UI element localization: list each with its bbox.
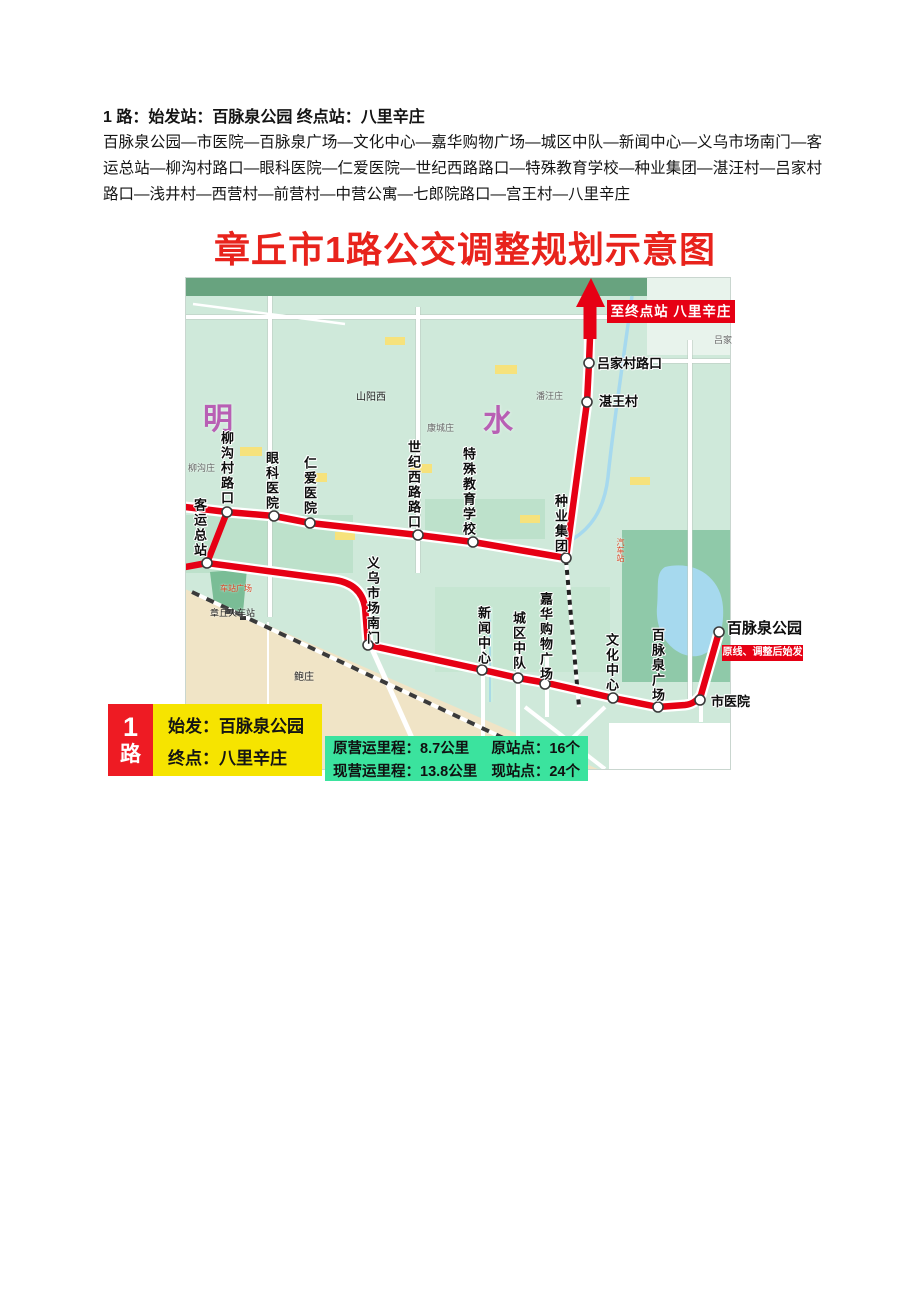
- station-marker: [222, 507, 232, 517]
- station-label-yiwu-market: 义乌市场南门: [365, 556, 379, 646]
- station-marker: [608, 693, 618, 703]
- legend-route-word: 路: [120, 742, 141, 768]
- station-marker: [695, 695, 705, 705]
- map-title: 章丘市1路公交调整规划示意图: [165, 221, 765, 273]
- legend-stats: 原营运里程：8.7公里 原站点：16个 现营运里程：13.8公里 现站点：24个: [325, 736, 588, 781]
- place-lyujia: 吕家: [714, 333, 732, 346]
- legend-start: 始发：百脉泉公园: [168, 712, 322, 737]
- station-marker: [305, 518, 315, 528]
- station-label-baimaiquan-square: 百脉泉广场: [650, 628, 664, 703]
- station-marker: [653, 702, 663, 712]
- scan-white-corner: [609, 723, 731, 770]
- station-label-zhanwangcun: 湛王村: [599, 395, 638, 409]
- station-label-culture-center: 文化中心: [604, 633, 618, 693]
- origin-banner: 原线、调整后始发: [722, 645, 803, 661]
- place-kangchengzhuang: 康城庄: [427, 421, 454, 434]
- station-marker: [513, 673, 523, 683]
- terminal-banner: 至终点站 八里辛庄: [607, 300, 735, 323]
- station-label-lyujiacun: 吕家村路口: [597, 357, 662, 371]
- station-marker: [582, 397, 592, 407]
- map-top-band: [185, 277, 647, 296]
- station-marker: [477, 665, 487, 675]
- station-label-jiahua-mall: 嘉华购物广场: [538, 592, 552, 682]
- legend-end: 终点：八里辛庄: [168, 744, 322, 769]
- area-label-shui: 水: [483, 396, 513, 440]
- legend-new-stops: 现站点：24个: [491, 760, 580, 781]
- station-label-chengqu-unit: 城区中队: [511, 611, 525, 671]
- station-marker: [561, 553, 571, 563]
- legend-new-row: 现营运里程：13.8公里 现站点：24个: [333, 760, 580, 781]
- legend-route-badge: 1 路: [108, 704, 153, 776]
- place-station-square: 车站广场: [220, 583, 252, 594]
- station-label-liugoucun: 柳沟村路口: [219, 431, 233, 506]
- station-label-city-hospital: 市医院: [711, 695, 750, 709]
- station-marker: [202, 558, 212, 568]
- place-shanyangxi: 山阳西: [356, 388, 386, 403]
- place-railway-station: 章丘火车站: [210, 606, 255, 619]
- route-heading: 1 路：始发站：百脉泉公园 终点站：八里辛庄: [103, 103, 843, 127]
- station-marker: [269, 511, 279, 521]
- station-marker: [584, 358, 594, 368]
- place-baozhuang: 鲍庄: [294, 668, 314, 683]
- station-label-bus-terminal: 客运总站: [192, 498, 206, 558]
- station-label-shijixilu: 世纪西路路口: [406, 440, 420, 530]
- station-marker: [468, 537, 478, 547]
- station-marker: [413, 530, 423, 540]
- station-label-baimaiquan-park: 百脉泉公园: [727, 621, 802, 637]
- document-page: 1 路：始发站：百脉泉公园 终点站：八里辛庄 百脉泉公园—市医院—百脉泉广场—文…: [0, 0, 920, 1302]
- legend-old-row: 原营运里程：8.7公里 原站点：16个: [333, 737, 580, 758]
- legend-start-end: 始发：百脉泉公园 终点：八里辛庄: [153, 704, 322, 776]
- station-label-eye-hospital: 眼科医院: [264, 451, 278, 511]
- place-panwangzhuang: 潘汪庄: [536, 389, 563, 402]
- station-marker: [714, 627, 724, 637]
- station-label-special-school: 特殊教育学校: [461, 447, 475, 537]
- legend-route-number: 1: [123, 712, 138, 742]
- place-liugouzhuang: 柳沟庄: [188, 461, 215, 474]
- place-bus-station: 汽车站: [615, 538, 626, 562]
- station-label-news-center: 新闻中心: [476, 606, 490, 666]
- legend-old-stops: 原站点：16个: [491, 737, 580, 758]
- station-label-seed-group: 种业集团: [553, 494, 567, 554]
- legend-new-mileage: 现营运里程：13.8公里: [333, 760, 477, 781]
- legend-old-mileage: 原营运里程：8.7公里: [333, 737, 469, 758]
- route-station-list: 百脉泉公园—市医院—百脉泉广场—文化中心—嘉华购物广场—城区中队—新闻中心—义乌…: [103, 130, 822, 207]
- station-label-renai-hospital: 仁爱医院: [302, 456, 316, 516]
